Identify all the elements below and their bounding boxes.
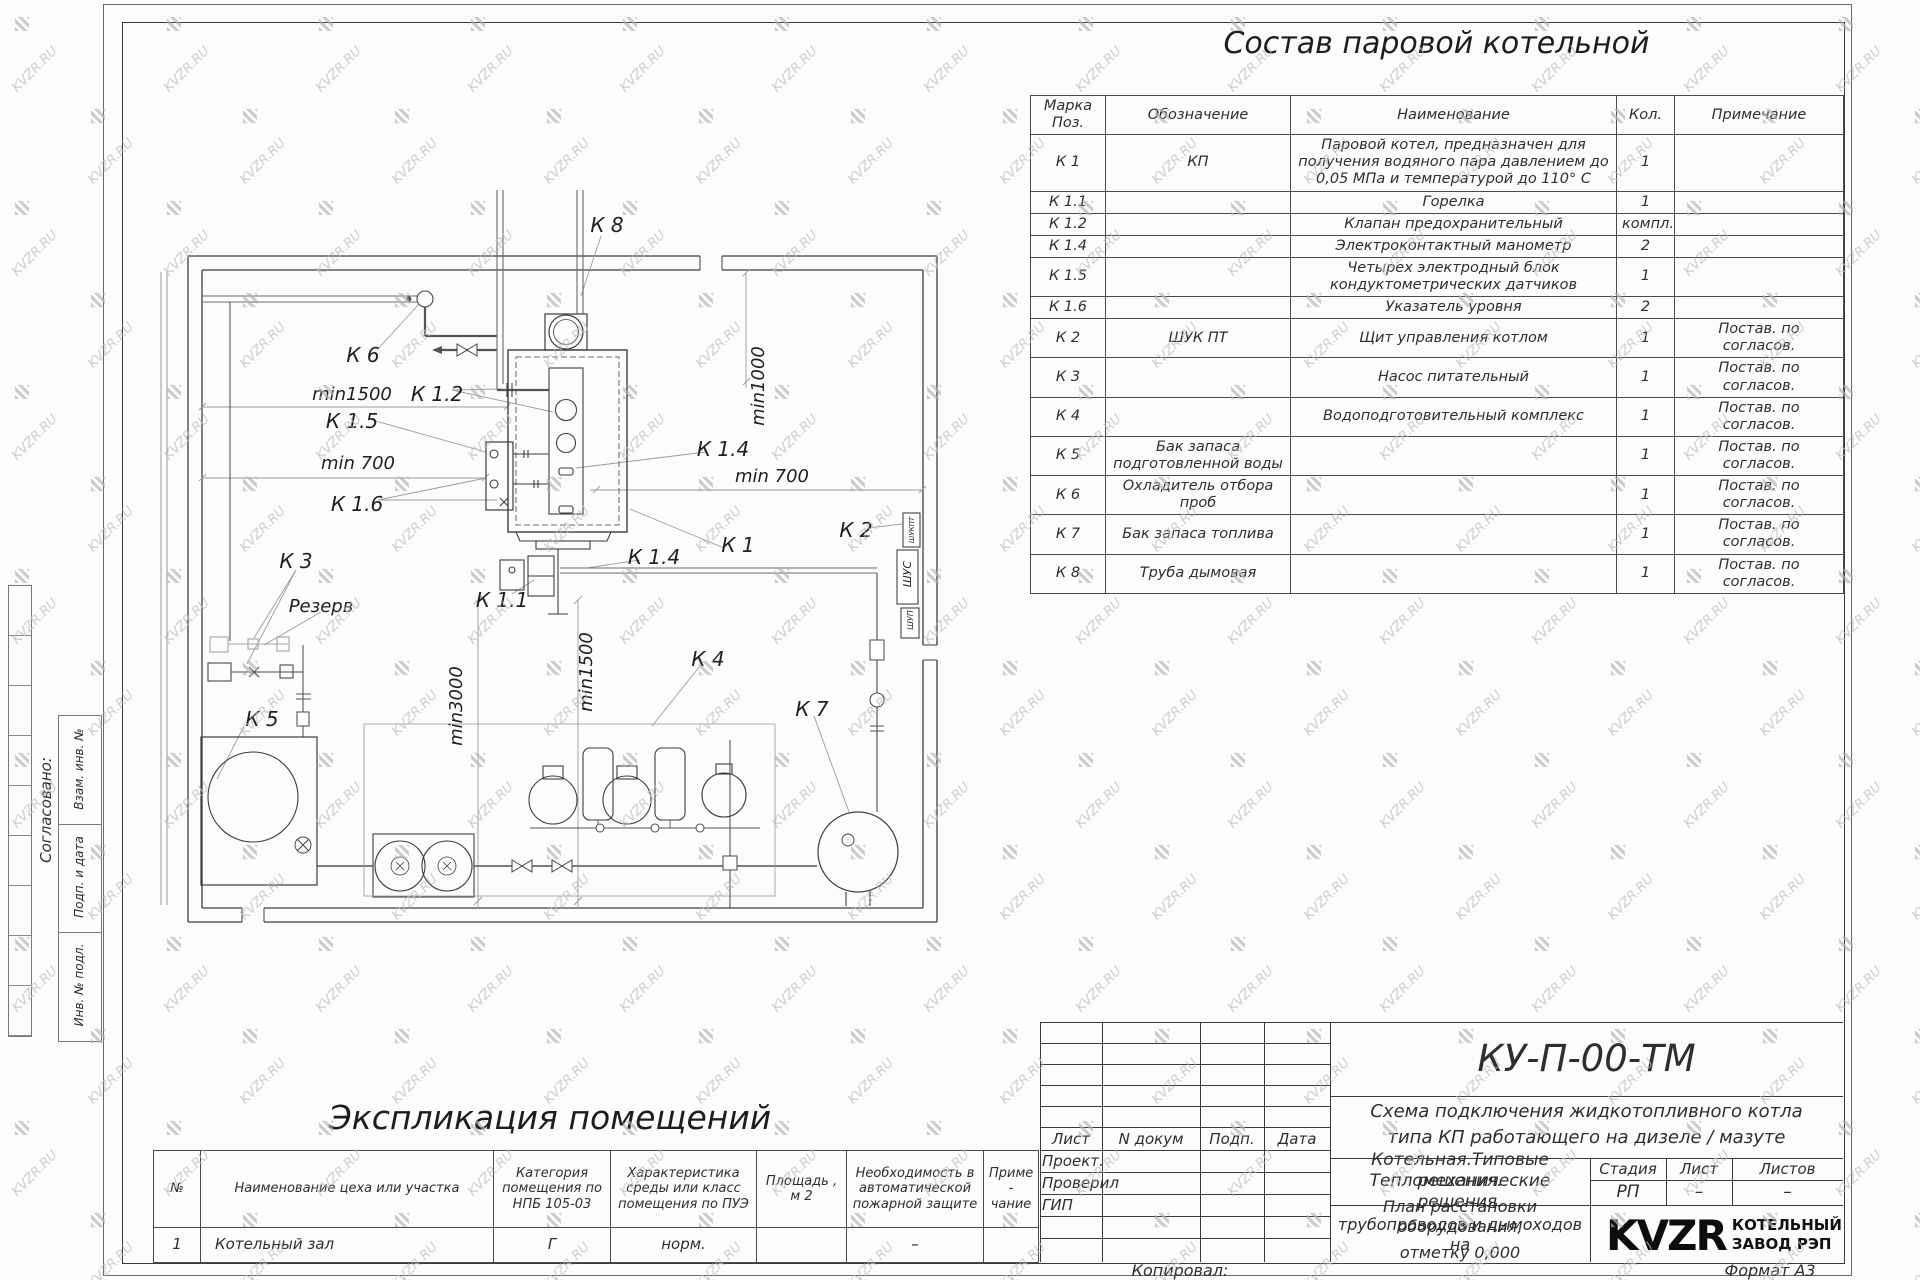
equip-cell: Постав. по согласов. xyxy=(1675,476,1844,515)
equip-cell: Постав. по согласов. xyxy=(1675,515,1844,554)
format-label: Формат А3 xyxy=(1700,1262,1840,1279)
equipment-row: К 1КППаровой котел, предназначен для пол… xyxy=(1031,135,1844,191)
equip-cell: 1 xyxy=(1617,191,1675,213)
plan-label-k12: К 1.2 xyxy=(411,382,463,406)
cabinet-label-shukpt: ШУКПТ xyxy=(908,516,916,543)
explication-table: № Наименование цеха или участка Категори… xyxy=(153,1150,1039,1263)
equipment-table: Марка Поз. Обозначение Наименование Кол.… xyxy=(1030,95,1844,594)
equip-cell: 1 xyxy=(1617,554,1675,593)
reserve-pump xyxy=(210,637,289,652)
equip-cell xyxy=(1675,213,1844,235)
equipment-row: К 8Труба дымовая1Постав. по согласов. xyxy=(1031,554,1844,593)
plan-label-k2: К 2 xyxy=(839,518,872,542)
equip-cell xyxy=(1675,297,1844,319)
equip-cell: Охладитель отбора проб xyxy=(1106,476,1291,515)
drawing-sheet: Согласовано: Взам. инв. № Подп. и дата И… xyxy=(0,0,1920,1280)
equip-cell xyxy=(1291,515,1617,554)
plan-label-k15: К 1.5 xyxy=(326,409,378,433)
plan-label-k8: К 8 xyxy=(590,213,623,237)
col-designation: Обозначение xyxy=(1106,96,1291,135)
equipment-row: К 1.5Четырех электродный блок кондуктоме… xyxy=(1031,257,1844,296)
equip-cell: К 1.5 xyxy=(1031,257,1106,296)
equip-cell: 1 xyxy=(1617,319,1675,358)
equip-cell: Постав. по согласов. xyxy=(1675,436,1844,475)
equip-cell: К 1.1 xyxy=(1031,191,1106,213)
equip-cell: Бак запаса топлива xyxy=(1106,515,1291,554)
plan-label-k6: К 6 xyxy=(346,343,379,367)
burner-k11 xyxy=(500,560,524,590)
rev-header-date: Дата xyxy=(1264,1128,1330,1150)
cabinet-label-shup: ШУП xyxy=(906,610,915,629)
equip-cell: 1 xyxy=(1617,397,1675,436)
equipment-row: К 5Бак запаса подготовленной воды1Постав… xyxy=(1031,436,1844,475)
expl-cell xyxy=(757,1228,847,1263)
equipment-row: К 3Насос питательный1Постав. по согласов… xyxy=(1031,358,1844,397)
cabinet-label-shus: ШУС xyxy=(901,561,914,587)
plan-label-rezerv: Резерв xyxy=(289,596,354,617)
outside-duct xyxy=(161,272,167,905)
plan-label-k1: К 1 xyxy=(721,533,754,557)
sheets-value: – xyxy=(1732,1180,1843,1205)
equip-cell: К 2 xyxy=(1031,319,1106,358)
equip-cell: К 7 xyxy=(1031,515,1106,554)
equip-cell: Постав. по согласов. xyxy=(1675,358,1844,397)
expl-cell xyxy=(984,1228,1039,1263)
equip-cell xyxy=(1106,213,1291,235)
equip-cell: 1 xyxy=(1617,135,1675,191)
equip-cell: 2 xyxy=(1617,235,1675,257)
equip-cell: К 4 xyxy=(1031,397,1106,436)
equip-cell: Горелка xyxy=(1291,191,1617,213)
equip-cell xyxy=(1675,235,1844,257)
equipment-row: К 1.4Электроконтактный манометр2 xyxy=(1031,235,1844,257)
equip-cell: Указатель уровня xyxy=(1291,297,1617,319)
plan-dim-min1500: min1500 xyxy=(312,384,392,405)
doc-subtitle-line1: Схема подключения жидкотопливного котла xyxy=(1330,1098,1843,1126)
equipment-row: К 2ШУК ПТЩит управления котлом1Постав. п… xyxy=(1031,319,1844,358)
company-logo: KVZR КОТЕЛЬНЫЙ ЗАВОД РЭП xyxy=(1600,1210,1840,1260)
col-mark: Марка Поз. xyxy=(1031,96,1106,135)
company-name: КОТЕЛЬНЫЙ ЗАВОД РЭП xyxy=(1732,1216,1842,1254)
equip-cell: К 3 xyxy=(1031,358,1106,397)
col-fire: Необходимость в автоматической пожарной … xyxy=(847,1151,984,1228)
explication-title: Экспликация помещений xyxy=(290,1098,810,1137)
equip-cell xyxy=(1291,554,1617,593)
plan-label-k14-upper: К 1.4 xyxy=(697,437,749,461)
col-num: № xyxy=(154,1151,201,1228)
equipment-row: К 4Водоподготовительный комплекс1Постав.… xyxy=(1031,397,1844,436)
sheets-header: Листов xyxy=(1732,1158,1843,1180)
equip-cell xyxy=(1291,436,1617,475)
equip-cell: 1 xyxy=(1617,358,1675,397)
rev-header-list: Лист xyxy=(1040,1128,1102,1150)
equip-cell: 2 xyxy=(1617,297,1675,319)
equipment-header-row: Марка Поз. Обозначение Наименование Кол.… xyxy=(1031,96,1844,135)
plan-label-k3: К 3 xyxy=(279,549,312,573)
water-tank-k5 xyxy=(201,737,317,885)
col-characteristic: Характеристика среды или класс помещения… xyxy=(611,1151,757,1228)
expl-cell: 1 xyxy=(154,1228,201,1263)
equip-cell: ШУК ПТ xyxy=(1106,319,1291,358)
equip-cell: К 1.2 xyxy=(1031,213,1106,235)
equip-cell: Труба дымовая xyxy=(1106,554,1291,593)
water-treatment-k4 xyxy=(364,724,775,908)
equip-cell: Постав. по согласов. xyxy=(1675,397,1844,436)
plan-label-k5: К 5 xyxy=(245,707,278,731)
equip-cell: К 6 xyxy=(1031,476,1106,515)
equip-cell xyxy=(1291,476,1617,515)
fuel-tank-k7 xyxy=(818,812,898,906)
fuel-pumps xyxy=(373,834,474,897)
dimension-lines xyxy=(199,269,926,908)
doc-subtitle-line2: типа КП работающего на дизеле / мазуте xyxy=(1330,1124,1843,1152)
equip-cell: Постав. по согласов. xyxy=(1675,554,1844,593)
equipment-row: К 7Бак запаса топлива1Постав. по согласо… xyxy=(1031,515,1844,554)
col-category: Категория помещения по НПБ 105-03 xyxy=(494,1151,611,1228)
rev-header-sign: Подп. xyxy=(1200,1128,1264,1150)
equip-cell: Бак запаса подготовленной воды xyxy=(1106,436,1291,475)
equip-cell xyxy=(1106,297,1291,319)
company-name-line2: ЗАВОД РЭП xyxy=(1732,1235,1832,1253)
explication-row: 1 Котельный зал Г норм. – xyxy=(154,1228,1039,1263)
equip-cell xyxy=(1106,358,1291,397)
col-room-name: Наименование цеха или участка xyxy=(201,1151,494,1228)
role-checked: Проверил xyxy=(1042,1172,1102,1194)
equip-cell: Паровой котел, предназначен для получени… xyxy=(1291,135,1617,191)
copied-label: Копировал: xyxy=(1100,1262,1260,1279)
equipment-table-title: Состав паровой котельной xyxy=(1030,26,1843,61)
doc-number: КУ-П-00-ТМ xyxy=(1330,1022,1843,1096)
plan-dim-min3000: min3000 xyxy=(446,666,467,746)
sheet-value: – xyxy=(1666,1180,1732,1205)
equip-cell: Четырех электродный блок кондуктометриче… xyxy=(1291,257,1617,296)
plan-label-k14-lower: К 1.4 xyxy=(628,545,680,569)
equip-cell xyxy=(1106,191,1291,213)
equip-cell: Клапан предохранительный xyxy=(1291,213,1617,235)
role-gip: ГИП xyxy=(1042,1194,1102,1216)
equipment-row: К 1.6Указатель уровня2 xyxy=(1031,297,1844,319)
plan-dim-min700-left: min 700 xyxy=(321,453,395,474)
plan-dim-min1500-vert: min1500 xyxy=(576,632,597,712)
equip-cell: К 8 xyxy=(1031,554,1106,593)
stage-header: Стадия xyxy=(1590,1158,1666,1180)
expl-cell: норм. xyxy=(611,1228,757,1263)
equipment-row: К 1.2Клапан предохранительныйкомпл. xyxy=(1031,213,1844,235)
equip-cell: К 1 xyxy=(1031,135,1106,191)
col-area: Площадь , м 2 xyxy=(757,1151,847,1228)
col-name: Наименование xyxy=(1291,96,1617,135)
plan-title-line2: трубопроводов и дымоходов на xyxy=(1334,1226,1586,1244)
equip-cell xyxy=(1106,235,1291,257)
valve-icon xyxy=(457,344,477,356)
equip-cell: 1 xyxy=(1617,257,1675,296)
equip-cell: Насос питательный xyxy=(1291,358,1617,397)
expl-cell: Котельный зал xyxy=(201,1228,494,1263)
equip-cell xyxy=(1106,397,1291,436)
pipe-joint-dot xyxy=(407,297,412,302)
expl-cell: – xyxy=(847,1228,984,1263)
equip-cell xyxy=(1675,135,1844,191)
sample-cooler-k6 xyxy=(417,291,433,307)
equipment-row: К 6Охладитель отбора проб1Постав. по сог… xyxy=(1031,476,1844,515)
col-qty: Кол. xyxy=(1617,96,1675,135)
expl-cell: Г xyxy=(494,1228,611,1263)
equip-cell: К 1.4 xyxy=(1031,235,1106,257)
equip-cell: компл. xyxy=(1617,213,1675,235)
plan-dim-min700-right: min 700 xyxy=(735,466,809,487)
equip-cell: Постав. по согласов. xyxy=(1675,319,1844,358)
col-note: Приме - чание xyxy=(984,1151,1039,1228)
equip-cell: К 5 xyxy=(1031,436,1106,475)
rev-header-doc: N докум xyxy=(1102,1128,1200,1150)
plan-label-k11: К 1.1 xyxy=(476,588,528,612)
stage-value: РП xyxy=(1590,1180,1666,1205)
main-pump xyxy=(208,663,303,681)
role-project: Проект. xyxy=(1042,1150,1102,1172)
equip-cell: КП xyxy=(1106,135,1291,191)
plan-title-line3: отметку 0,000 xyxy=(1334,1244,1586,1262)
plan-label-k7: К 7 xyxy=(795,697,829,721)
equip-cell: 1 xyxy=(1617,476,1675,515)
plan-dim-min1000: min1000 xyxy=(748,346,769,426)
col-note: Примечание xyxy=(1675,96,1844,135)
equip-cell xyxy=(1675,191,1844,213)
kvzr-logo-text: KVZR xyxy=(1606,1211,1726,1260)
plan-label-k16: К 1.6 xyxy=(331,492,383,516)
chimney-k8-flue xyxy=(549,315,583,349)
leader-lines xyxy=(217,236,902,812)
company-name-line1: КОТЕЛЬНЫЙ xyxy=(1732,1216,1842,1234)
equip-cell: Щит управления котлом xyxy=(1291,319,1617,358)
explication-header-row: № Наименование цеха или участка Категори… xyxy=(154,1151,1039,1228)
sheet-header: Лист xyxy=(1666,1158,1732,1180)
equip-cell: Водоподготовительный комплекс xyxy=(1291,397,1617,436)
equip-cell xyxy=(1106,257,1291,296)
equip-cell: Электроконтактный манометр xyxy=(1291,235,1617,257)
plan-label-k4: К 4 xyxy=(691,647,724,671)
equip-cell: 1 xyxy=(1617,515,1675,554)
equip-cell: К 1.6 xyxy=(1031,297,1106,319)
equip-cell xyxy=(1675,257,1844,296)
equip-cell: 1 xyxy=(1617,436,1675,475)
equipment-row: К 1.1Горелка1 xyxy=(1031,191,1844,213)
